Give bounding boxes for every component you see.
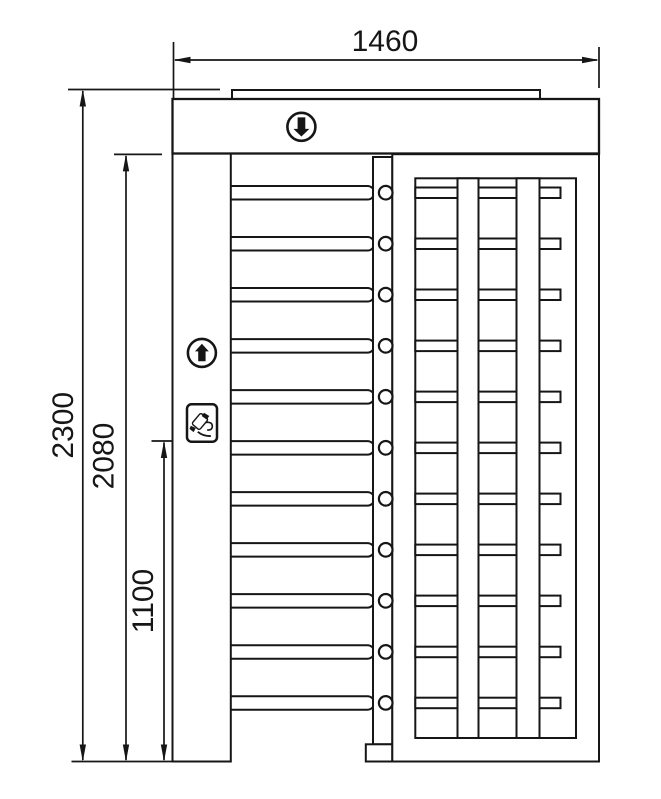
svg-text:2080: 2080 bbox=[87, 423, 120, 490]
svg-text:1460: 1460 bbox=[352, 25, 419, 58]
svg-text:1100: 1100 bbox=[127, 569, 160, 634]
svg-text:2300: 2300 bbox=[47, 392, 80, 459]
